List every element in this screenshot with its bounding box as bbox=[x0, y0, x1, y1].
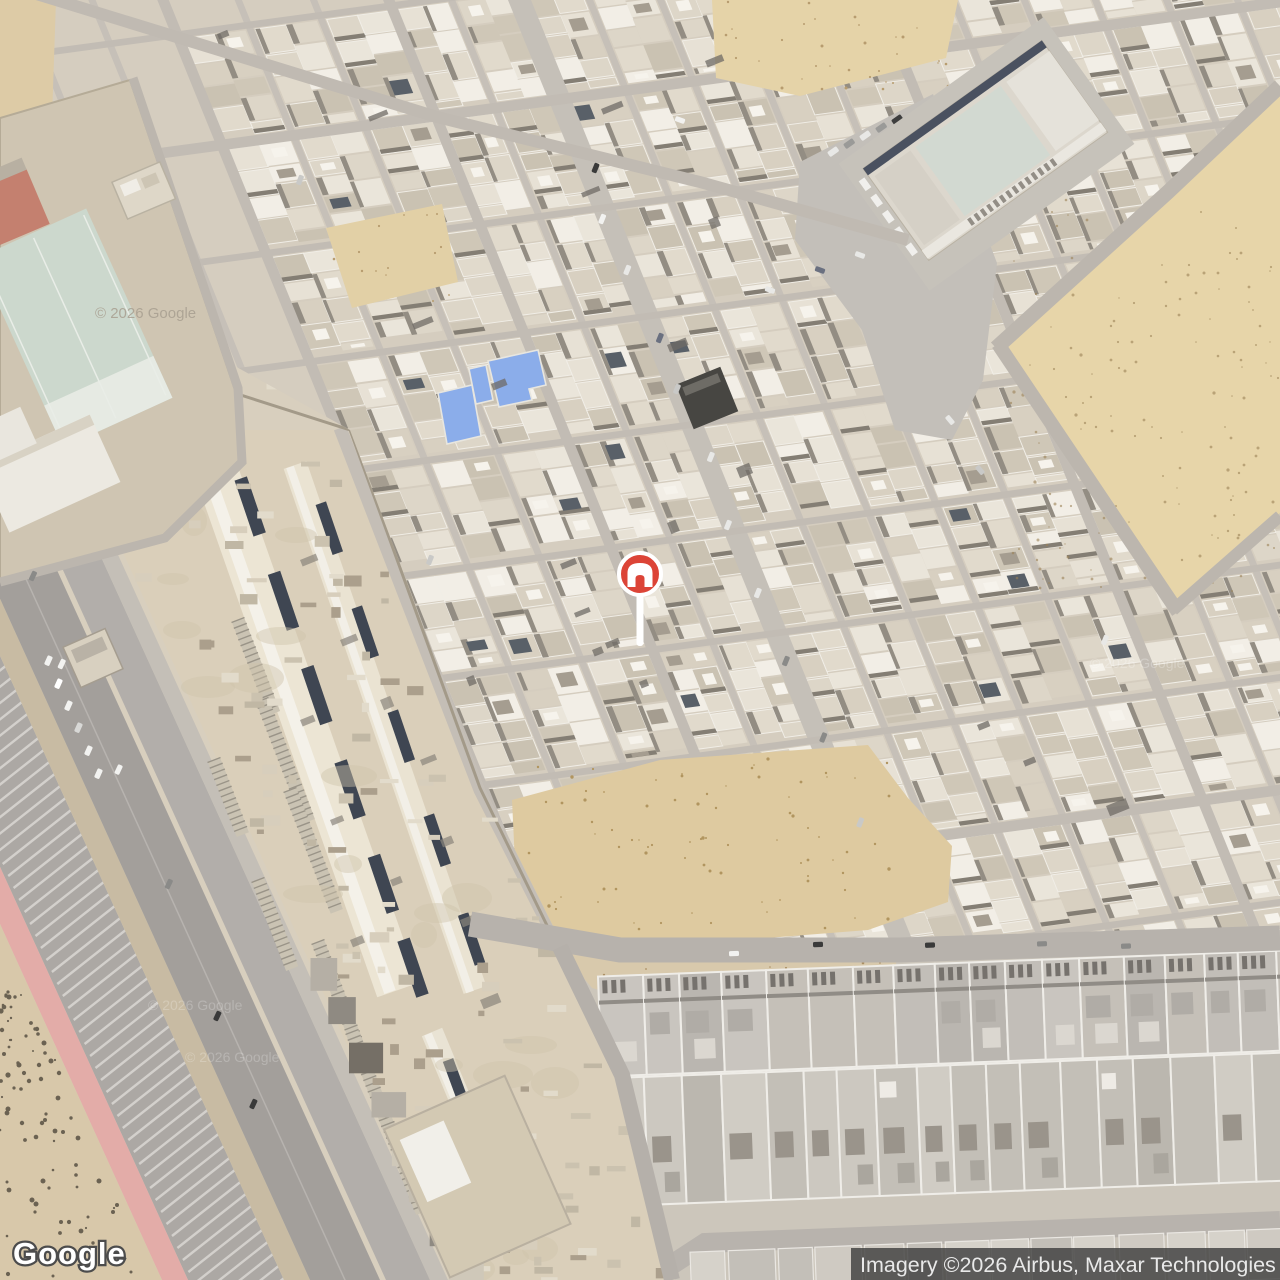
svg-text:© 2026 Google: © 2026 Google bbox=[1090, 655, 1185, 671]
svg-text:Google: Google bbox=[13, 1236, 126, 1271]
svg-text:© 2026 Google: © 2026 Google bbox=[95, 305, 196, 322]
svg-text:© 2026 Google: © 2026 Google bbox=[185, 1049, 280, 1065]
svg-text:© 2026 Google: © 2026 Google bbox=[148, 997, 243, 1013]
svg-text:Imagery ©2026 Airbus, Maxar Te: Imagery ©2026 Airbus, Maxar Technologies bbox=[860, 1253, 1276, 1277]
